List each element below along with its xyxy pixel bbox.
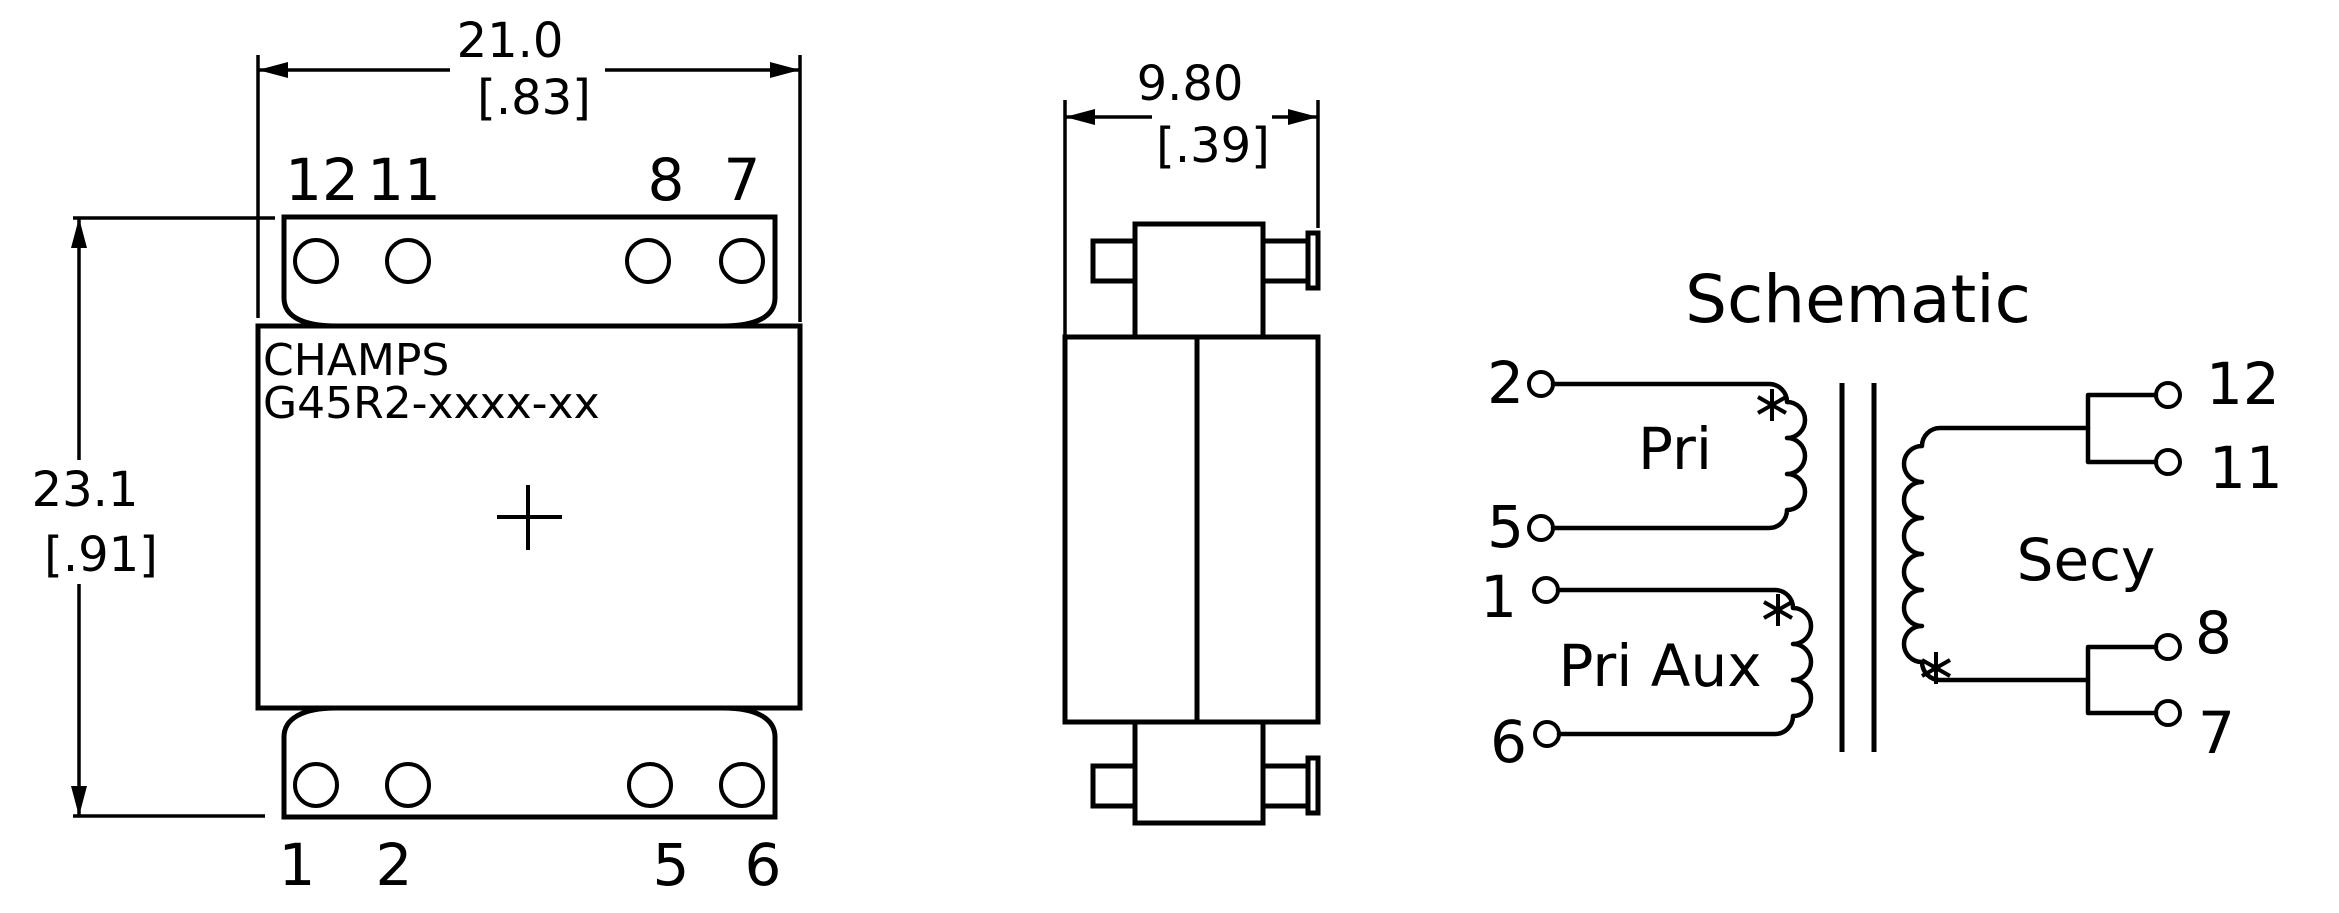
side-top-header — [1135, 224, 1263, 337]
secondary-bottom-fork — [2088, 647, 2156, 713]
dim-width-mm: 21.0 — [457, 13, 564, 69]
side-bottom-left-pin — [1093, 766, 1135, 806]
pin-label-11: 11 — [367, 146, 441, 214]
front-top-flange-right-fillet — [723, 298, 775, 326]
side-bottom-right-pin-foot — [1308, 758, 1318, 813]
dim-depth-inch: [.39] — [1156, 118, 1270, 174]
pin-label-8: 8 — [648, 146, 685, 214]
secondary-winding-label: Secy — [2017, 526, 2156, 594]
schematic: Schematic — [1480, 261, 2283, 776]
schematic-pin-6: 6 — [1490, 708, 1527, 776]
front-bottom-flange — [284, 737, 775, 817]
pin-label-2: 2 — [376, 831, 413, 899]
pin-label-12: 12 — [285, 146, 359, 214]
pin-hole-12 — [295, 240, 337, 282]
pin-hole-5 — [629, 764, 671, 806]
schematic-pin-12: 12 — [2206, 350, 2280, 418]
side-top-right-pin — [1263, 241, 1308, 281]
arrowhead-left-icon — [258, 62, 288, 78]
arrowhead-left-icon — [1065, 109, 1095, 125]
pin-label-7: 7 — [724, 146, 761, 214]
front-bottom-flange-right-fillet — [723, 708, 775, 737]
schematic-title: Schematic — [1685, 261, 2031, 338]
terminal-pin-5 — [1529, 516, 1553, 540]
dim-height-mm: 23.1 — [32, 462, 139, 518]
schematic-pin-2: 2 — [1487, 349, 1524, 417]
schematic-pin-11: 11 — [2209, 434, 2283, 502]
side-bottom-right-pin — [1263, 766, 1308, 806]
pin-hole-1 — [295, 764, 337, 806]
technical-drawing: CHAMPS G45R2-xxxx-xx 12 11 8 7 1 2 5 6 2… — [0, 0, 2339, 913]
pin-hole-2 — [387, 764, 429, 806]
front-view: CHAMPS G45R2-xxxx-xx 12 11 8 7 1 2 5 6 — [258, 146, 800, 899]
schematic-pin-5: 5 — [1487, 493, 1524, 561]
terminal-pin-2 — [1529, 372, 1553, 396]
marking-part-number: G45R2-xxxx-xx — [263, 378, 600, 429]
terminal-pin-11 — [2156, 450, 2180, 474]
dim-depth-mm: 9.80 — [1137, 56, 1244, 112]
primary-winding-label: Pri — [1638, 415, 1712, 483]
arrowhead-right-icon — [770, 62, 800, 78]
pin-hole-8 — [627, 240, 669, 282]
pin-label-5: 5 — [653, 831, 690, 899]
schematic-pin-7: 7 — [2198, 699, 2235, 767]
dimension-depth: 9.80 [.39] — [1065, 56, 1318, 335]
side-bottom-header — [1135, 722, 1263, 823]
terminal-pin-8 — [2156, 635, 2180, 659]
side-body — [1065, 337, 1318, 722]
side-view — [1065, 224, 1318, 823]
arrowhead-down-icon — [71, 786, 87, 816]
polarity-asterisk-primary-aux-icon — [1764, 594, 1792, 626]
dim-height-inch: [.91] — [44, 527, 158, 583]
polarity-asterisk-primary-icon — [1758, 389, 1786, 421]
secondary-top-fork — [2088, 395, 2156, 462]
dim-width-inch: [.83] — [477, 70, 591, 126]
pin-hole-7 — [721, 240, 763, 282]
transformer-drawing-page: CHAMPS G45R2-xxxx-xx 12 11 8 7 1 2 5 6 2… — [0, 0, 2339, 913]
side-top-left-pin — [1093, 241, 1135, 281]
pin-label-6: 6 — [745, 831, 782, 899]
pin-hole-11 — [387, 240, 429, 282]
center-mark-icon — [497, 485, 562, 550]
front-bottom-flange-left-fillet — [284, 708, 336, 737]
arrowhead-right-icon — [1288, 109, 1318, 125]
dimension-height: 23.1 [.91] — [32, 218, 275, 816]
schematic-pin-1: 1 — [1480, 563, 1517, 631]
schematic-pin-8: 8 — [2195, 599, 2232, 667]
pin-hole-6 — [721, 764, 763, 806]
terminal-pin-7 — [2156, 701, 2180, 725]
front-top-flange-left-fillet — [284, 298, 336, 326]
terminal-pin-6 — [1535, 722, 1559, 746]
terminal-pin-12 — [2156, 383, 2180, 407]
terminal-pin-1 — [1534, 578, 1558, 602]
primary-aux-winding-label: Pri Aux — [1558, 632, 1761, 700]
side-top-right-pin-foot — [1308, 233, 1318, 288]
arrowhead-up-icon — [71, 218, 87, 248]
pin-label-1: 1 — [279, 831, 316, 899]
front-top-flange — [284, 217, 775, 298]
